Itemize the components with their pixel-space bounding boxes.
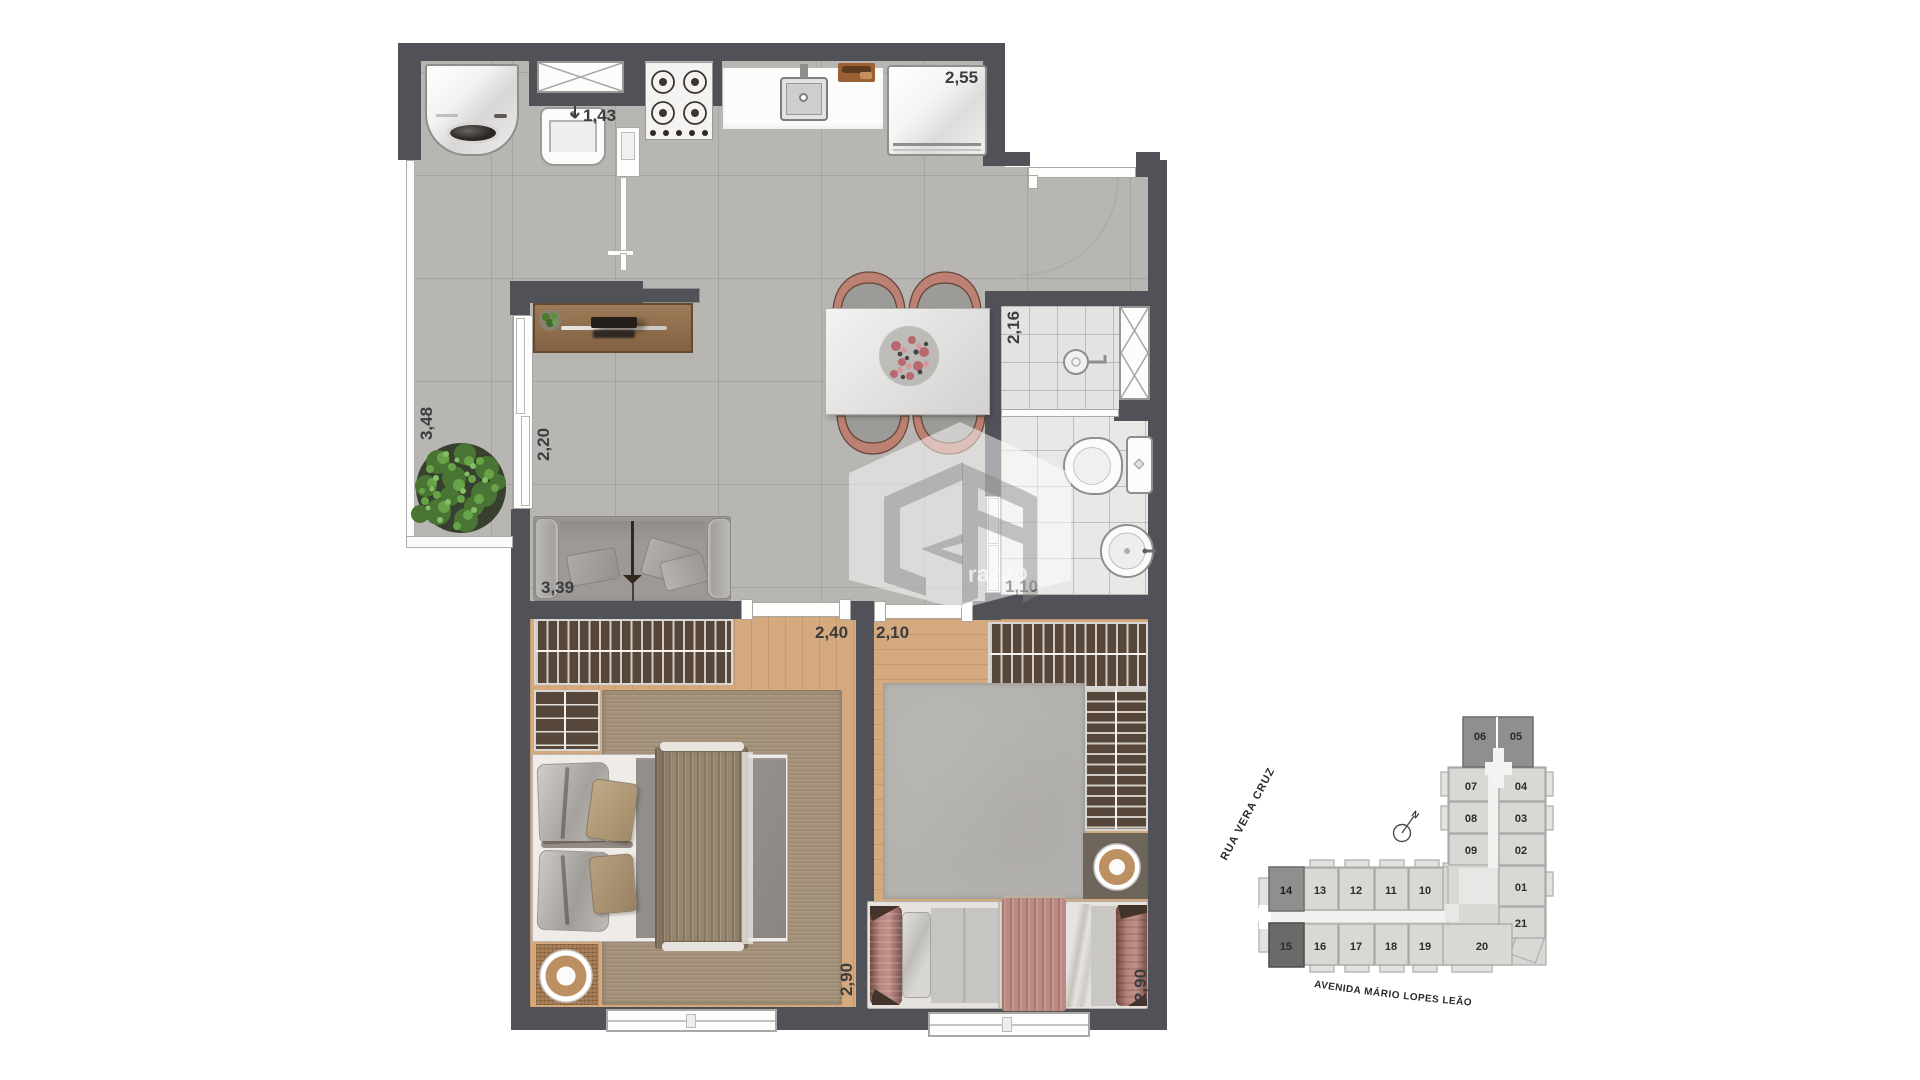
svg-text:19: 19 [1419, 941, 1431, 953]
svg-text:11: 11 [1385, 885, 1397, 897]
svg-text:08: 08 [1465, 813, 1477, 825]
svg-text:09: 09 [1465, 845, 1477, 857]
svg-text:10: 10 [1419, 885, 1431, 897]
svg-text:14: 14 [1280, 885, 1293, 897]
svg-text:15: 15 [1280, 941, 1292, 953]
svg-text:13: 13 [1314, 885, 1326, 897]
svg-text:18: 18 [1385, 941, 1397, 953]
svg-text:21: 21 [1515, 918, 1527, 930]
svg-text:01: 01 [1515, 882, 1527, 894]
svg-text:razão: razão [967, 559, 1028, 587]
svg-text:16: 16 [1314, 941, 1326, 953]
svg-text:05: 05 [1510, 731, 1522, 743]
svg-text:02: 02 [1515, 845, 1527, 857]
svg-text:17: 17 [1350, 941, 1362, 953]
svg-text:12: 12 [1350, 885, 1362, 897]
svg-text:03: 03 [1515, 813, 1527, 825]
svg-text:07: 07 [1465, 781, 1477, 793]
svg-text:AVENIDA MÁRIO LOPES LEÃO: AVENIDA MÁRIO LOPES LEÃO [1313, 979, 1472, 1009]
svg-text:20: 20 [1476, 941, 1488, 953]
svg-text:04: 04 [1515, 781, 1528, 793]
svg-text:RUA VERA CRUZ: RUA VERA CRUZ [1220, 766, 1278, 863]
svg-text:06: 06 [1474, 731, 1486, 743]
